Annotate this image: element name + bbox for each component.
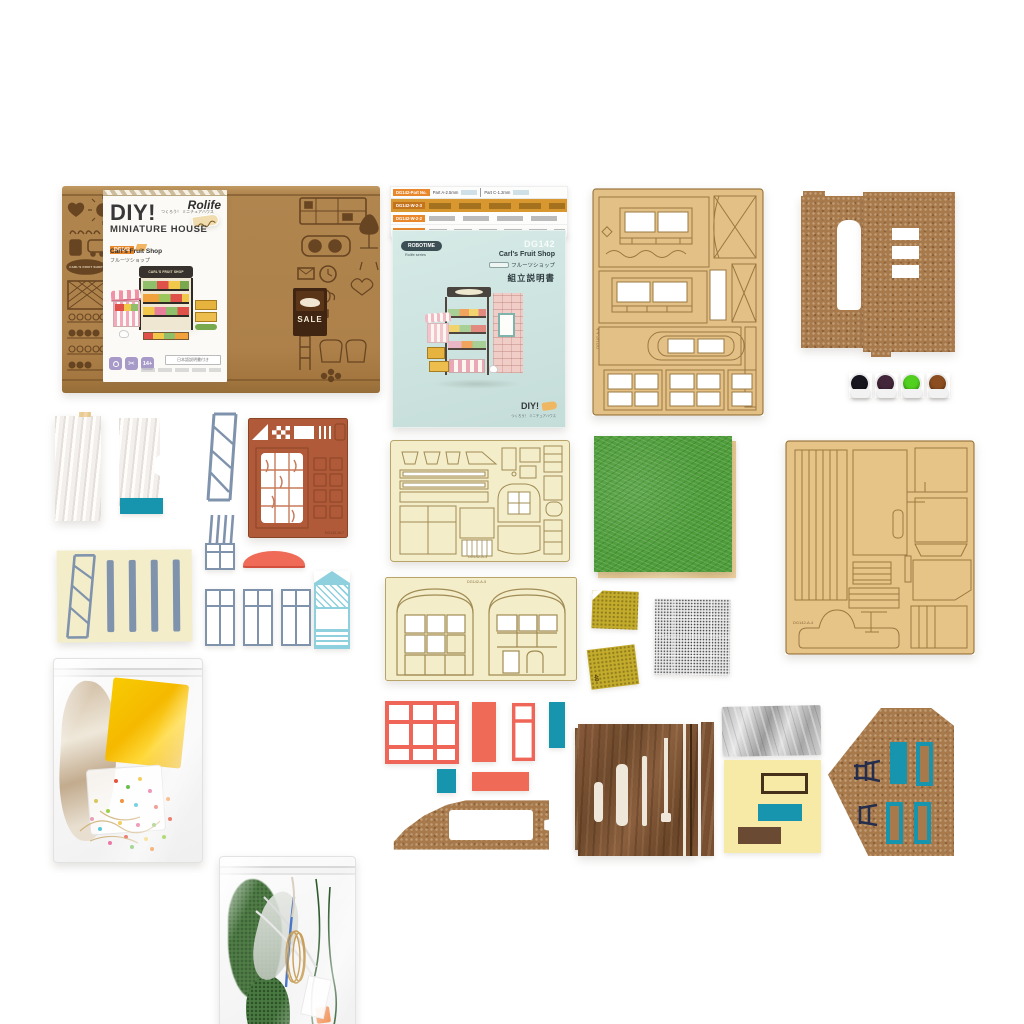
sandpaper-grit-label: 40 (592, 675, 599, 682)
arched-window-sheet: DG142-A-5 (385, 577, 577, 681)
chipboard-cutout-2 (892, 246, 919, 259)
brown-detail-art (248, 418, 348, 538)
plywood-sheet-top: DG142-A-A (592, 188, 764, 416)
walnut-strip-2 (701, 722, 714, 856)
illus-fruit-row (143, 332, 189, 340)
cream-sheet-a3-art (390, 440, 570, 562)
shop-sign-oval: CARL'S FRUIT SHOP (67, 261, 105, 273)
manual-diy-logo: DIY! (521, 401, 539, 411)
window-pair-3 (281, 589, 311, 646)
cream-sheet-a3: DG142-A-3 (390, 440, 570, 562)
product-name: Carl's Fruit Shop (110, 248, 162, 255)
parts-col-divider (480, 188, 481, 197)
manual-diy-tag (542, 401, 558, 411)
panel-tab (79, 412, 91, 417)
bag2-wires (226, 867, 351, 1024)
brown-detail-sheet: DG142-W-7 (248, 418, 348, 538)
house-stool-icon (857, 803, 879, 827)
manual-diy-sub: つくろう！ ミニチュアハウス (511, 413, 556, 418)
walnut-sheet (578, 724, 698, 856)
led-light-icon (113, 361, 119, 367)
sale-sign-label: SALE (296, 315, 324, 324)
illus-shop-sign: CARL'S FRUIT SHOP (139, 266, 193, 278)
walnut-edge-line (690, 724, 692, 856)
manual-doc-title: 組立説明書 (507, 272, 555, 284)
paint-pot-purple (875, 373, 898, 398)
arched-sheet-marking: DG142-A-5 (467, 580, 486, 584)
tower-lattice (314, 583, 350, 609)
plywood-sheet-large-art (785, 440, 975, 655)
sale-sign-art (296, 291, 324, 311)
instruction-manual: ROBOTIME Rolife series DG142 Carl's Frui… (392, 230, 566, 428)
teal-panel-small (437, 769, 456, 793)
mesh-seams (654, 599, 731, 676)
house-teal-frame-2 (886, 802, 903, 844)
slat-1 (107, 560, 115, 632)
paint-pot-green (901, 373, 924, 398)
manual-title-jp: フルーツショップ (511, 261, 555, 269)
card-brown-rect (738, 827, 781, 844)
slat-3 (151, 560, 159, 632)
parts-bag-1 (53, 658, 203, 863)
sandpaper-square-2: 40 (587, 644, 640, 690)
illus-rack (139, 278, 193, 330)
scissors-icon: ✂ (128, 359, 135, 368)
counter-cutout (449, 810, 533, 840)
parts-col-a-label: Part A-2.5mm (433, 190, 459, 195)
silver-foil (722, 705, 822, 757)
bag1-yellow-fabric (105, 677, 189, 768)
sandpaper-torn-corner (592, 590, 602, 600)
mesh-square (654, 599, 731, 676)
house-teal-solid (890, 742, 907, 784)
sandpaper-square-1 (591, 590, 638, 630)
manual-title-chip (489, 262, 509, 268)
chipboard-cutout-tall (837, 220, 861, 310)
product-name-jp: フルーツショップ (110, 257, 150, 264)
walnut-stick-4 (664, 738, 668, 822)
bag1-strings (70, 771, 190, 851)
cream-sheet-a3-marking: DG142-A-3 (468, 555, 487, 559)
cream-sheet-ladder (57, 549, 193, 642)
plywood-panel-notched (119, 418, 160, 506)
house-teal-frame-1 (916, 742, 933, 786)
kit-box: CARL'S FRUIT SHOP SALE DIY! つくろう！ ミニチュアハ… (62, 186, 380, 393)
outlined-frame-piece (761, 773, 808, 794)
slat-4 (173, 560, 181, 632)
chipboard-piece-right (863, 192, 955, 352)
window-pair-1 (205, 589, 235, 646)
parts-col-a-chip (461, 190, 477, 195)
coral-bar (472, 772, 529, 791)
parts-row-highlight: DG142-W-2-3 (391, 199, 567, 212)
paint-pot-brown (927, 373, 950, 398)
plywood-sheet-large-marking: DG142-A-4 (793, 620, 813, 625)
cork-counter-piece (389, 797, 549, 853)
house-teal-frame-3 (914, 802, 931, 844)
sale-sign: SALE (293, 288, 327, 336)
teal-panel (549, 702, 565, 748)
chipboard-tab (803, 191, 825, 197)
rolife-logo: Rolife (188, 198, 221, 212)
age-badge-label: 14+ (143, 361, 152, 367)
illus-awning (111, 289, 142, 302)
walnut-stick-3 (642, 756, 647, 826)
chipboard-cutout-3 (892, 265, 919, 278)
walnut-stick-1 (594, 782, 603, 822)
box-illustration: CARL'S FRUIT SHOP (109, 266, 221, 346)
plywood-sheet-top-art (592, 188, 764, 416)
parts-col-c-chip (513, 190, 529, 195)
window-pair-2 (243, 589, 273, 646)
fine-print-lines (141, 368, 221, 372)
box-front-label: DIY! つくろう！ ミニチュアハウス Rolife MINIATURE HOU… (103, 190, 227, 382)
coral-panel (472, 702, 496, 762)
jp-note-label: 日本語説明書付き (177, 357, 209, 363)
chipboard-piece-left (801, 196, 863, 348)
parts-row-0-lines (429, 203, 565, 209)
jp-note-box: 日本語説明書付き (165, 355, 221, 365)
house-chair-icon (852, 758, 882, 784)
coral-window-frame (512, 703, 535, 761)
shop-sign-oval-label: CARL'S FRUIT SHOP (69, 265, 102, 269)
cork-house-piece (828, 708, 954, 856)
card-teal-rect (758, 804, 802, 821)
parts-bag-2 (219, 856, 356, 1024)
plywood-sheet-top-marking: DG142-A-A (595, 328, 600, 349)
foil-crinkle (722, 705, 822, 757)
ladder-on-sheet (63, 553, 100, 639)
plywood-sheet-large: DG142-A-4 (785, 440, 975, 655)
scissors-badge: ✂ (125, 357, 138, 370)
manual-title: Carl's Fruit Shop (499, 251, 555, 258)
lattice-tower-piece (314, 571, 350, 649)
yellow-card-sheet (724, 760, 821, 853)
chipboard-tab-2 (871, 351, 891, 357)
parts-row-1: DG142-W-2-2 (391, 212, 567, 225)
ladder-piece (205, 412, 239, 502)
washi-tape (103, 190, 227, 196)
walnut-stick-2 (616, 764, 628, 826)
robotime-logo-label: ROBOTIME (408, 243, 435, 249)
slat-2 (129, 560, 137, 632)
parts-row-1-badge: DG142-W-2-2 (393, 215, 425, 222)
manual-illustration (429, 287, 529, 399)
illus-crates (195, 300, 217, 332)
tower-roof (314, 571, 350, 583)
arched-window-art (385, 577, 577, 681)
parts-row-0-badge: DG142-W-2-3 (393, 202, 425, 209)
brown-detail-marking: DG142-W-7 (325, 531, 344, 535)
robotime-logo: ROBOTIME (401, 241, 442, 251)
red-window-grid (385, 701, 459, 764)
paint-pot-black (849, 373, 872, 398)
tower-slats (314, 631, 350, 649)
led-badge (109, 357, 122, 370)
walnut-edge-slot (683, 724, 686, 856)
illus-stand (113, 301, 140, 327)
window-pair-small (205, 543, 235, 570)
tower-open (314, 609, 350, 631)
miniature-house-subtitle: MINIATURE HOUSE (110, 224, 208, 235)
felt-grass-surface (594, 436, 732, 572)
manual-model-number: DG142 (524, 239, 555, 249)
teal-rectangle-piece (120, 498, 163, 514)
illus-goat (119, 330, 129, 338)
paint-pot-strip (849, 373, 950, 398)
parts-row-1-lines (429, 216, 565, 221)
parts-col-c-label: Part C-1.2mm (484, 190, 510, 195)
illus-shop-sign-label: CARL'S FRUIT SHOP (148, 270, 183, 274)
awning-piece-red (243, 551, 305, 568)
felt-grass-square (594, 436, 736, 577)
chipboard-cutout-1 (892, 228, 919, 240)
series-label: Rolife series (405, 253, 426, 257)
parts-header-badge: DG142-Part No. (393, 189, 430, 196)
diy-title: DIY! (110, 200, 156, 226)
plywood-panel-tall (55, 416, 101, 521)
